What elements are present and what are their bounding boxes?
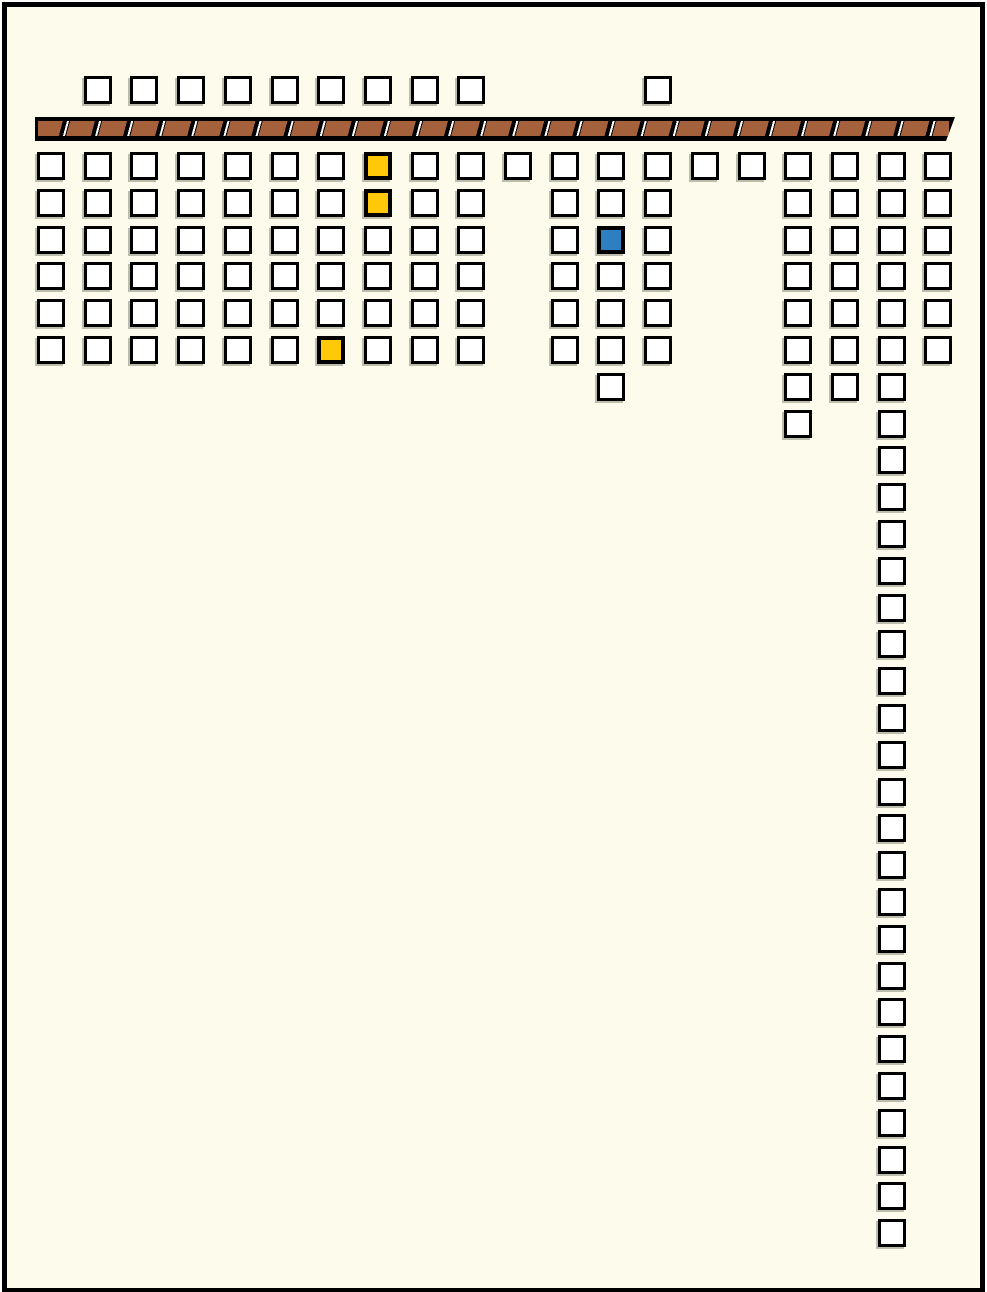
grid-square[interactable] (831, 262, 859, 290)
grid-square[interactable] (37, 226, 65, 254)
grid-square[interactable] (924, 262, 952, 290)
grid-square[interactable] (597, 226, 625, 254)
grid-square[interactable] (224, 226, 252, 254)
grid-square[interactable] (784, 226, 812, 254)
grid-square[interactable] (364, 189, 392, 217)
grid-square[interactable] (878, 1035, 906, 1063)
grid-square[interactable] (364, 262, 392, 290)
grid-square[interactable] (457, 299, 485, 327)
grid-square[interactable] (317, 189, 345, 217)
grid-square[interactable] (224, 189, 252, 217)
grid-square[interactable] (551, 152, 579, 180)
grid-square[interactable] (878, 594, 906, 622)
grid-square[interactable] (271, 226, 299, 254)
grid-square[interactable] (551, 189, 579, 217)
grid-square[interactable] (784, 373, 812, 401)
grid-square[interactable] (878, 630, 906, 658)
grid-square[interactable] (37, 152, 65, 180)
grid-square[interactable] (644, 336, 672, 364)
grid-square[interactable] (457, 336, 485, 364)
grid-square[interactable] (597, 299, 625, 327)
grid-square[interactable] (457, 226, 485, 254)
grid-square[interactable] (130, 76, 158, 104)
grid-square[interactable] (271, 262, 299, 290)
grid-square[interactable] (411, 76, 439, 104)
grid-square[interactable] (224, 152, 252, 180)
grid-square[interactable] (878, 1146, 906, 1174)
grid-square[interactable] (691, 152, 719, 180)
grid-square[interactable] (130, 226, 158, 254)
grid-square[interactable] (130, 262, 158, 290)
grid-square[interactable] (831, 299, 859, 327)
grid-square[interactable] (317, 299, 345, 327)
grid-square[interactable] (644, 152, 672, 180)
grid-square[interactable] (551, 299, 579, 327)
grid-square[interactable] (878, 888, 906, 916)
grid-square[interactable] (597, 262, 625, 290)
grid-square[interactable] (37, 299, 65, 327)
grid-square[interactable] (177, 299, 205, 327)
grid-square[interactable] (551, 226, 579, 254)
grid-square[interactable] (784, 152, 812, 180)
grid-square[interactable] (644, 299, 672, 327)
grid-square[interactable] (84, 262, 112, 290)
grid-square[interactable] (317, 226, 345, 254)
grid-square[interactable] (784, 262, 812, 290)
grid-square[interactable] (878, 299, 906, 327)
grid-square[interactable] (551, 336, 579, 364)
grid-square[interactable] (924, 226, 952, 254)
grid-square[interactable] (177, 262, 205, 290)
grid-square[interactable] (271, 299, 299, 327)
grid-square[interactable] (878, 851, 906, 879)
grid-square[interactable] (457, 76, 485, 104)
grid-square[interactable] (411, 262, 439, 290)
grid-square[interactable] (84, 299, 112, 327)
grid-square[interactable] (411, 152, 439, 180)
grid-square[interactable] (457, 189, 485, 217)
grid-square[interactable] (831, 189, 859, 217)
grid-square[interactable] (411, 226, 439, 254)
grid-square[interactable] (84, 189, 112, 217)
grid-square[interactable] (457, 262, 485, 290)
grid-square[interactable] (37, 262, 65, 290)
grid-square[interactable] (224, 299, 252, 327)
grid-layer (0, 0, 987, 1292)
grid-square[interactable] (317, 336, 345, 364)
grid-square[interactable] (738, 152, 766, 180)
grid-square[interactable] (878, 704, 906, 732)
grid-square[interactable] (177, 226, 205, 254)
grid-square[interactable] (878, 1182, 906, 1210)
grid-square[interactable] (224, 262, 252, 290)
grid-square[interactable] (878, 262, 906, 290)
grid-square[interactable] (411, 299, 439, 327)
grid-square[interactable] (784, 189, 812, 217)
grid-square[interactable] (130, 189, 158, 217)
grid-square[interactable] (597, 373, 625, 401)
grid-square[interactable] (364, 152, 392, 180)
grid-square[interactable] (411, 189, 439, 217)
grid-square[interactable] (37, 189, 65, 217)
grid-square[interactable] (271, 189, 299, 217)
grid-square[interactable] (457, 152, 485, 180)
grid-square[interactable] (644, 189, 672, 217)
grid-square[interactable] (504, 152, 532, 180)
grid-square[interactable] (878, 336, 906, 364)
grid-square[interactable] (924, 336, 952, 364)
grid-square[interactable] (597, 152, 625, 180)
grid-square[interactable] (411, 336, 439, 364)
grid-square[interactable] (130, 299, 158, 327)
grid-square[interactable] (597, 336, 625, 364)
grid-square[interactable] (831, 373, 859, 401)
grid-square[interactable] (84, 226, 112, 254)
grid-square[interactable] (271, 76, 299, 104)
grid-square[interactable] (317, 262, 345, 290)
grid-square[interactable] (224, 76, 252, 104)
grid-square[interactable] (130, 152, 158, 180)
grid-square[interactable] (784, 410, 812, 438)
grid-square[interactable] (878, 152, 906, 180)
grid-square[interactable] (878, 483, 906, 511)
grid-square[interactable] (644, 76, 672, 104)
grid-square[interactable] (271, 152, 299, 180)
grid-square[interactable] (177, 189, 205, 217)
grid-square[interactable] (878, 373, 906, 401)
grid-square[interactable] (177, 336, 205, 364)
grid-square[interactable] (878, 410, 906, 438)
grid-square[interactable] (831, 226, 859, 254)
grid-square[interactable] (878, 226, 906, 254)
grid-square[interactable] (364, 226, 392, 254)
grid-square[interactable] (924, 189, 952, 217)
grid-square[interactable] (878, 1072, 906, 1100)
grid-square[interactable] (878, 520, 906, 548)
grid-square[interactable] (364, 76, 392, 104)
grid-square[interactable] (784, 299, 812, 327)
grid-square[interactable] (644, 262, 672, 290)
grid-square[interactable] (37, 336, 65, 364)
grid-square[interactable] (831, 336, 859, 364)
grid-square[interactable] (878, 778, 906, 806)
grid-square[interactable] (878, 925, 906, 953)
grid-square[interactable] (177, 152, 205, 180)
grid-square[interactable] (878, 962, 906, 990)
grid-square[interactable] (878, 741, 906, 769)
grid-square[interactable] (84, 76, 112, 104)
grid-square[interactable] (597, 189, 625, 217)
grid-square[interactable] (878, 667, 906, 695)
grid-square[interactable] (317, 152, 345, 180)
grid-square[interactable] (84, 152, 112, 180)
grid-square[interactable] (317, 76, 345, 104)
grid-square[interactable] (878, 998, 906, 1026)
grid-square[interactable] (878, 814, 906, 842)
grid-square[interactable] (271, 336, 299, 364)
grid-square[interactable] (924, 299, 952, 327)
grid-square[interactable] (84, 336, 112, 364)
grid-square[interactable] (924, 152, 952, 180)
grid-square[interactable] (551, 262, 579, 290)
grid-square[interactable] (878, 557, 906, 585)
grid-square[interactable] (364, 336, 392, 364)
grid-square[interactable] (364, 299, 392, 327)
grid-square[interactable] (644, 226, 672, 254)
grid-square[interactable] (878, 1219, 906, 1247)
grid-square[interactable] (224, 336, 252, 364)
grid-square[interactable] (831, 152, 859, 180)
grid-square[interactable] (878, 446, 906, 474)
grid-square[interactable] (130, 336, 158, 364)
grid-square[interactable] (878, 1109, 906, 1137)
grid-square[interactable] (784, 336, 812, 364)
grid-square[interactable] (878, 189, 906, 217)
grid-square[interactable] (177, 76, 205, 104)
